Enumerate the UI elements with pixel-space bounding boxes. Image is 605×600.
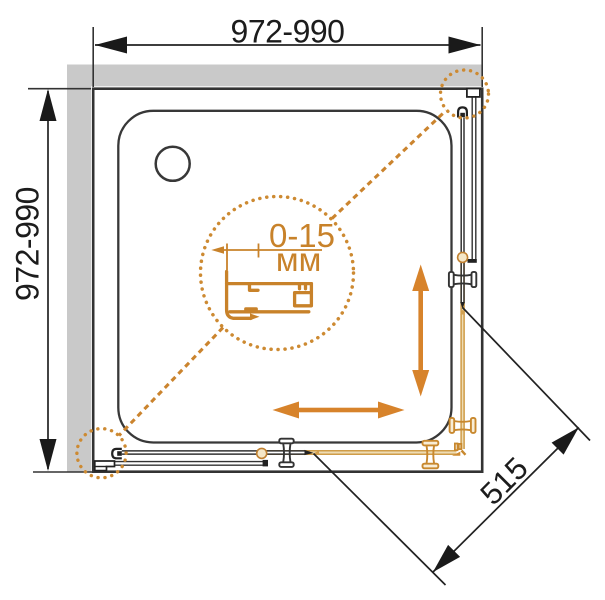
svg-text:972-990: 972-990 bbox=[10, 187, 46, 301]
svg-text:мм: мм bbox=[276, 241, 321, 278]
svg-text:972-990: 972-990 bbox=[231, 14, 345, 50]
